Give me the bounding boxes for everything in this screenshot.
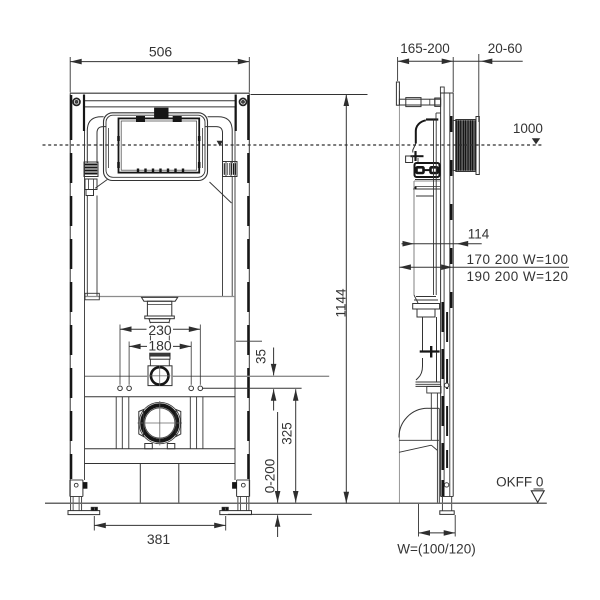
svg-text:170 200 W=100: 170 200 W=100 bbox=[467, 252, 569, 267]
svg-text:W=(100/120): W=(100/120) bbox=[397, 542, 475, 557]
svg-text:230: 230 bbox=[148, 322, 172, 338]
svg-text:114: 114 bbox=[468, 226, 490, 241]
svg-text:190 200 W=120: 190 200 W=120 bbox=[467, 269, 569, 284]
svg-text:325: 325 bbox=[280, 422, 295, 445]
svg-text:165-200: 165-200 bbox=[400, 41, 450, 56]
svg-text:180: 180 bbox=[148, 338, 172, 354]
svg-text:381: 381 bbox=[147, 531, 171, 547]
svg-text:OKFF 0: OKFF 0 bbox=[496, 475, 543, 490]
svg-text:35: 35 bbox=[253, 349, 268, 364]
svg-text:20-60: 20-60 bbox=[488, 41, 523, 56]
svg-text:0-200: 0-200 bbox=[262, 459, 277, 494]
svg-text:1144: 1144 bbox=[333, 288, 348, 318]
svg-text:506: 506 bbox=[149, 44, 173, 60]
svg-text:1000: 1000 bbox=[513, 121, 543, 136]
